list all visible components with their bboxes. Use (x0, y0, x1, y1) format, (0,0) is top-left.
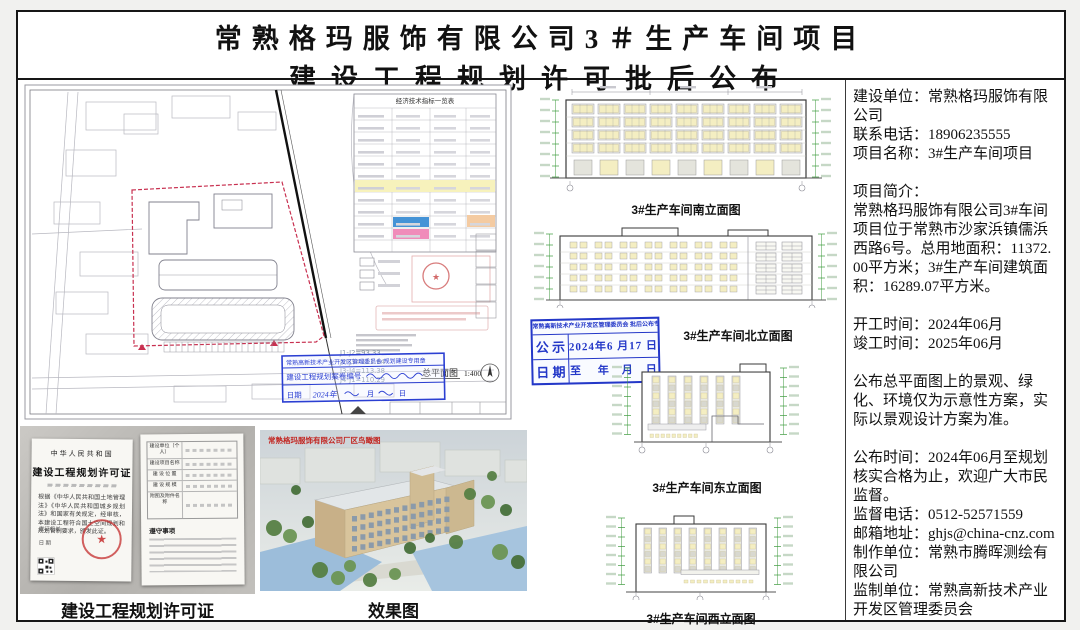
plan-blue-stamp: 常熟高新技术产业开发区管理委员会 规划建设专用章 建设工程规划案卷编号 日期 2… (282, 353, 445, 402)
info-line: 常熟格玛服饰有限公司3#车间项目位于常熟市沙家浜镇儒浜西路6号。总用地面积：11… (853, 202, 1058, 297)
info-line (853, 430, 1058, 449)
info-line: 监制单位：常熟高新技术产业开发区管理委员会 (853, 582, 1058, 620)
svg-text:2024年: 2024年 (313, 390, 338, 399)
obligations-heading: 遵守事项 (149, 525, 244, 536)
qr-code-icon (37, 558, 54, 575)
info-line: 公布时间：2024年06月至规划核实合格为止，欢迎广大市民监督。 (853, 449, 1058, 506)
certificate-info-table: 建设单位（个人） 建设项目名称 建 设 位 置 建 设 规 模 附图及附件名称 (146, 441, 238, 520)
elevation-east-label: 3#生产车间东立面图 (612, 479, 802, 496)
plan-stamp-date-label: 日期 (287, 391, 302, 400)
info-line (853, 297, 1058, 316)
info-line: 开工时间：2024年06月 (853, 316, 1058, 335)
certificate-left-page: 中华人民共和国 建设工程规划许可证 根据《中华人民共和国土地管理法》《中华人民共… (30, 438, 132, 581)
certificate-country: 中华人民共和国 (32, 448, 133, 459)
permit-certificate-photo: 中华人民共和国 建设工程规划许可证 根据《中华人民共和国土地管理法》《中华人民共… (20, 426, 255, 594)
title-block: 常熟格玛服饰有限公司3＃生产车间项目 建设工程规划许可批后公布 (18, 12, 1064, 80)
indicators-table-title: 经济技术指标一览表 (396, 96, 455, 105)
info-line: 制作单位：常熟市腾晖测绘有限公司 (853, 544, 1058, 582)
plan-stamp-case-label: 建设工程规划案卷编号 (286, 371, 361, 382)
svg-text:月: 月 (367, 389, 375, 398)
project-info-panel: 建设单位：常熟格玛服饰有限公司 联系电话：18906235555 项目名称：3#… (845, 80, 1064, 620)
notice-poster-page: 常熟格玛服饰有限公司3＃生产车间项目 建设工程规划许可批后公布 (0, 0, 1080, 630)
elevation-east: 3#生产车间东立面图 (612, 354, 802, 496)
info-line: 建设单位：常熟格玛服饰有限公司 (853, 88, 1058, 126)
red-seal-icon: ★ (81, 519, 121, 559)
notice-stamp-r1c1: 公 示 (533, 335, 570, 360)
indicators-table: 经济技术指标一览表 (354, 94, 496, 252)
parcel-buildings (149, 194, 294, 340)
parking-row (164, 342, 284, 352)
info-lines: 建设单位：常熟格玛服饰有限公司 联系电话：18906235555 项目名称：3#… (846, 80, 1058, 620)
certificate-title: 建设工程规划许可证 (31, 463, 132, 479)
elevation-west-label: 3#生产车间西立面图 (596, 610, 806, 627)
info-line: 项目名称：3#生产车间项目 (853, 145, 1058, 164)
info-line: 项目简介： (853, 183, 1058, 202)
page-title-line1: 常熟格玛服饰有限公司3＃生产车间项目 (18, 17, 1064, 56)
elevation-west: 3#生产车间西立面图 (596, 504, 806, 627)
certificate-caption: 建设工程规划许可证 (20, 597, 255, 622)
info-line: 邮箱地址：ghjs@china-cnz.com (853, 525, 1058, 544)
info-line: 联系电话：18906235555 (853, 126, 1058, 145)
info-line: 公布总平面图上的景观、绿化、环境仅为示意性方案，实际以景观设计方案为准。 (853, 373, 1058, 430)
dimension-lines (572, 86, 802, 95)
svg-text:★: ★ (432, 272, 440, 282)
legend (360, 258, 400, 290)
info-line: 竣工时间：2025年06月 (853, 335, 1058, 354)
rendering-caption: 效果图 (260, 597, 527, 622)
obligations-text-lines (149, 538, 236, 573)
rendering-watermark: 常熟格玛服饰有限公司厂区鸟瞰图 (268, 435, 381, 445)
svg-text:日: 日 (399, 389, 407, 398)
site-plan-drawing: 经济技术指标一览表 (24, 84, 512, 420)
info-line (853, 164, 1058, 183)
site-plan-svg: 经济技术指标一览表 (24, 84, 512, 420)
elevation-north (530, 212, 842, 313)
info-line: 监督电话：0512-52571559 (853, 506, 1058, 525)
elevation-south: 3#生产车间南立面图 (530, 84, 842, 218)
certificate-right-page: 建设单位（个人） 建设项目名称 建 设 位 置 建 设 规 模 附图及附件名称 … (140, 434, 244, 586)
table-highlight-row (355, 180, 495, 192)
issue-date-label: 日 期 (39, 541, 51, 547)
info-line (853, 354, 1058, 373)
notice-stamp-r2c1: 日 期 (533, 359, 569, 383)
plan-scale: 1:400 (464, 369, 481, 378)
issue-authority-label: 发证机关 (39, 527, 61, 533)
aerial-rendering: 常熟格玛服饰有限公司厂区鸟瞰图 (260, 430, 527, 591)
poster-frame: 常熟格玛服饰有限公司3＃生产车间项目 建设工程规划许可批后公布 (16, 10, 1066, 622)
certificate-number-line (47, 484, 117, 488)
